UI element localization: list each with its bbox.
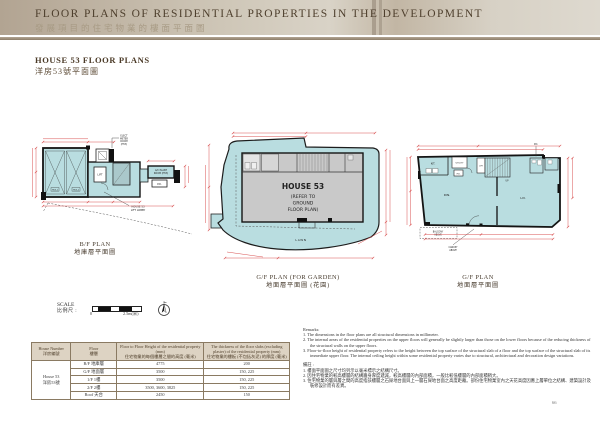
pd-label: P.D. [457,173,461,175]
utility-label: UTILITY [456,163,464,165]
section-title-en: HOUSE 53 FLOOR PLANS [35,55,150,65]
scale-zero: 0 [90,311,92,316]
bf-floor-plan: H53-1 H53-2 LIFT [28,132,193,247]
refer-note-1: (REFER TO [291,194,316,200]
header-divider-brown [0,37,600,40]
house-number-cell: House 53洋房53號 [32,360,71,399]
balcony-above: BALCONY ABOVE [420,228,457,239]
table-row: 2/F 2樓 3500, 3600, 3825 150, 225 [32,384,290,392]
bf-stairs [113,163,130,185]
table-header-row: House Number洋房編號 Floor樓層 Floor to Floor … [32,343,290,361]
page-number: 66 [552,400,557,405]
refer-note-2: GROUND [293,201,314,207]
canopy-above: CANOPY ABOVE [449,229,475,252]
brochure-page: FLOOR PLANS OF RESIDENTIAL PROPERTIES IN… [0,0,600,424]
remark-en-3: 3. Floor-to-floor height of residential … [303,348,595,358]
liv-label: LIV. [520,196,526,200]
bf-ac-plant-room: A/C PLANT ROOM (H53) P.D. [140,166,180,187]
page-title: FLOOR PLANS OF RESIDENTIAL PROPERTIES IN… [35,8,483,20]
svg-text:LIFT LOBBY: LIFT LOBBY [131,208,146,212]
page-title-chinese: 發展項目的住宅物業的樓面平面圖 [35,22,208,34]
gf-garden-plan-caption: G/F PLAN (FOR GARDEN) 地面層平面圖 (花園) [233,273,363,291]
floor-height-table: House Number洋房編號 Floor樓層 Floor to Floor … [31,342,290,400]
remark-zh-3: 3. 住宅物業的層與層之間的高度指該樓層之石屎地台面與上一層石屎地台面之高度距離… [303,378,595,388]
remark-en-2: 2. The internal areas of the residential… [303,337,595,347]
kit-label: KIT. [431,162,436,166]
din-label: DIN. [444,193,450,197]
carpark-2-label: H53-2 [73,189,80,191]
bf-garage: H53-1 H53-2 [41,146,90,201]
lawn-label: LAWN [295,238,306,242]
bf-pd-label: P.D. [157,183,162,186]
svg-text:ABOVE: ABOVE [449,249,457,252]
svg-text:P.D.: P.D. [534,143,538,146]
scale-max: 2.5m(米) [123,311,138,317]
table-row: G/F 地面層 3500 150, 225 [32,368,290,376]
table-row: House 53洋房53號 B/F 地庫層 4775 200 [32,360,290,368]
carpark-1-label: H53-1 [52,189,59,191]
svg-text:ABOVE: ABOVE [434,234,442,237]
gf-lift: LIFT [477,158,485,173]
header-band: FLOOR PLANS OF RESIDENTIAL PROPERTIES IN… [0,0,600,35]
north-compass-icon [156,300,172,318]
gf-garden-floor-plan: LAWN HOUSE 53 (REFER TO [203,127,398,282]
house-footprint: HOUSE 53 (REFER TO GROUND FLOOR PLAN) [242,153,363,228]
remarks-block: Remarks: 1. The dimensions in the floor … [303,327,595,389]
svg-text:(H53): (H53) [121,143,128,146]
gf-plan-caption: G/F PLAN 地面層平面圖 [430,273,526,291]
bf-plan-caption: B/F PLAN 地庫層平面圖 [50,240,140,258]
table-row: 1/F 1樓 3500 150, 225 [32,376,290,384]
bf-core: LIFT [88,149,140,197]
house-53-label: HOUSE 53 [282,182,324,191]
section-title: HOUSE 53 FLOOR PLANS 洋房53號平面圖 [35,55,150,77]
ac-plant-label-2: ROOM (H53) [154,172,168,175]
section-title-zh: 洋房53號平面圖 [35,66,150,77]
bf-site-boundary [43,203,192,234]
refer-note-3: FLOOR PLAN) [288,207,319,213]
scale-label: SCALE 比例尺 : [57,302,77,315]
gf-floor-plan: KIT. UTILITY P.D. LIFT UP [403,138,588,273]
remarks-block-zh: 備註 : 1. 樓面平面圖之尺寸均列示以毫米標示之結構尺寸。 2. 因住宅物業的… [303,362,595,388]
table-row: Roof 天台 2450 150 [32,391,290,399]
bf-lift-label: LIFT [97,173,103,177]
